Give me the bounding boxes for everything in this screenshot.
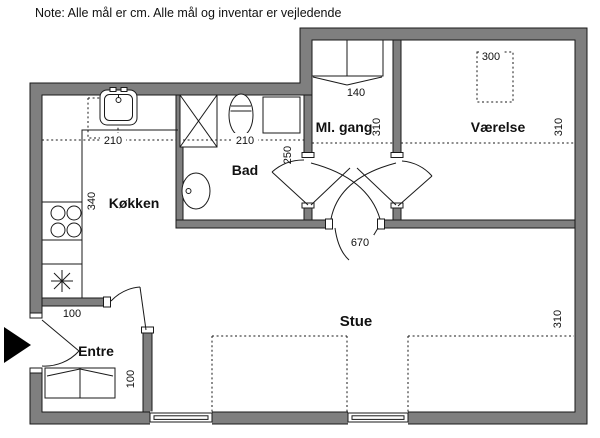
- wall-interior-bottom-left: [176, 220, 332, 228]
- dim-living-depth: 310: [552, 310, 564, 328]
- door-jamb-cap: [104, 297, 111, 307]
- floor-plan-page: Note: Alle mål er cm. Alle mål og invent…: [0, 0, 600, 438]
- window-frame: [154, 416, 208, 420]
- toilet-icon: [229, 94, 253, 136]
- wall-entry-top: [42, 298, 110, 306]
- door-jamb-cap: [30, 313, 42, 318]
- kitchen-sink-icon: [100, 88, 137, 126]
- room-label-living: Stue: [340, 313, 373, 330]
- dim-hall-wardrobe: 140: [347, 87, 365, 99]
- freezer-star-icon: [51, 270, 73, 292]
- note-text: Note: Alle mål er cm. Alle mål og invent…: [35, 6, 341, 20]
- room-label-bedroom: Værelse: [471, 119, 526, 135]
- wall-hall-bedroom-upper: [393, 40, 401, 157]
- bathroom-cabinet: [263, 97, 300, 133]
- shower-icon: [180, 95, 217, 147]
- window-frame: [352, 416, 404, 420]
- door-jamb-cap: [378, 219, 385, 229]
- bathroom-sink-icon: [182, 173, 210, 209]
- door-jamb-cap: [142, 327, 154, 333]
- wall-entry-right: [143, 330, 152, 412]
- door-jamb-cap: [391, 153, 403, 158]
- wall-bath-hall-upper: [304, 95, 312, 157]
- dim-kitchen-length: 340: [86, 192, 98, 210]
- dim-bath-width: 210: [236, 135, 254, 147]
- dim-entry-depth: 100: [125, 370, 137, 388]
- dim-bath-depth: 250: [282, 146, 294, 164]
- room-label-hall: Ml. gang: [316, 119, 373, 135]
- entry-wardrobe: [45, 368, 115, 398]
- wall-interior-bottom-right: [378, 220, 575, 228]
- door-jamb-cap: [30, 368, 42, 373]
- front-door-opening: [29, 318, 42, 368]
- floor-plan-svg: Note: Alle mål er cm. Alle mål og invent…: [0, 0, 600, 438]
- dim-bedroom-closet: 300: [482, 51, 500, 63]
- dim-kitchen-width: 210: [104, 135, 122, 147]
- room-label-bath: Bad: [232, 162, 258, 178]
- dim-entry-width: 100: [63, 308, 81, 320]
- door-jamb-cap: [302, 153, 314, 158]
- room-label-entry: Entre: [78, 343, 114, 359]
- dim-hall-depth: 310: [371, 118, 383, 136]
- room-label-kitchen: Køkken: [109, 195, 160, 211]
- door-jamb-cap: [326, 219, 333, 229]
- dim-living-width: 670: [351, 237, 369, 249]
- dim-bedroom-depth: 310: [553, 118, 565, 136]
